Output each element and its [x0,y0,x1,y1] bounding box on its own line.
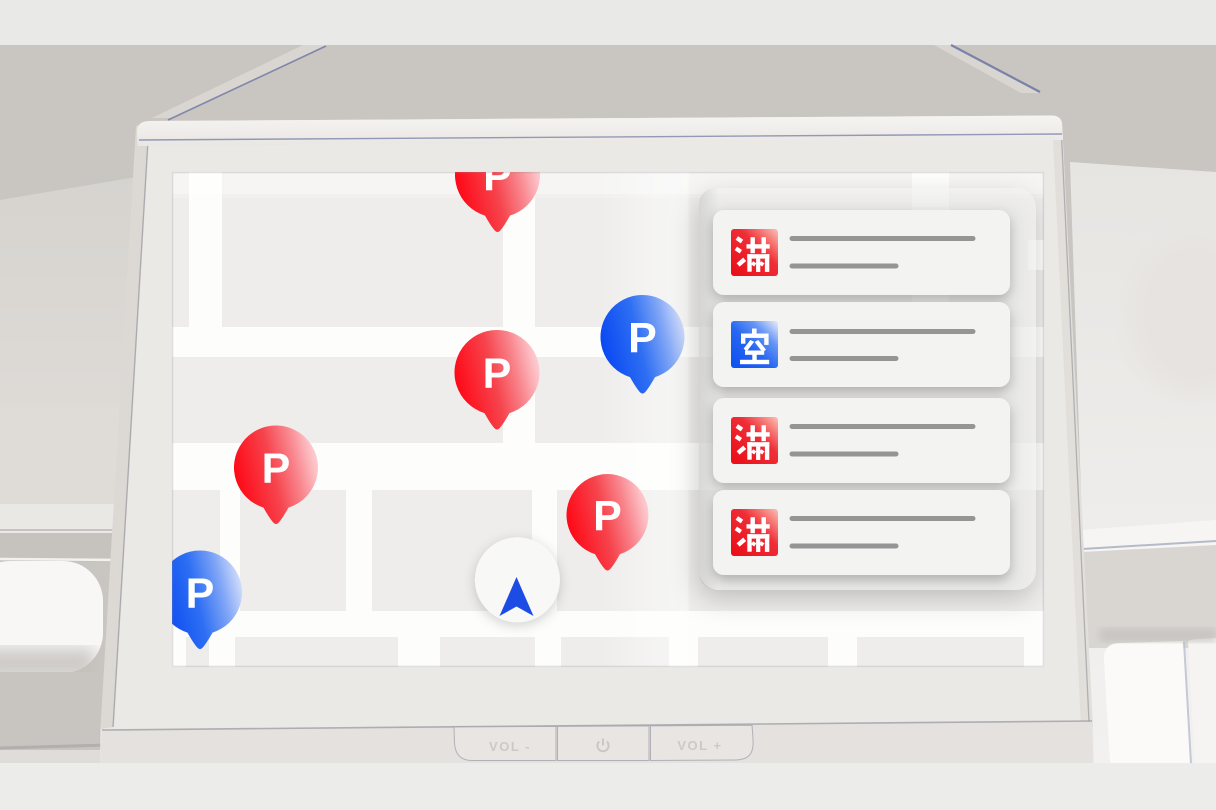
svg-text:VOL -: VOL - [489,739,531,754]
svg-text:P: P [628,315,657,363]
svg-text:P: P [483,350,512,398]
svg-text:P: P [262,445,291,493]
svg-text:VOL +: VOL + [677,738,722,753]
svg-text:P: P [593,493,622,541]
svg-text:P: P [186,570,215,618]
